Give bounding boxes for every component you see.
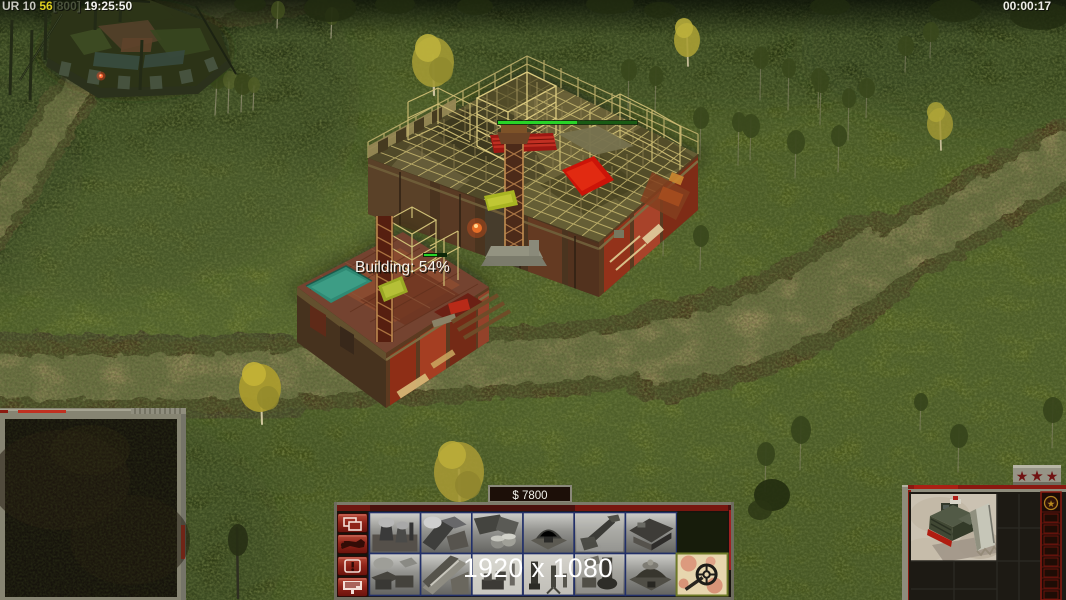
svg-text:00:00:17: 00:00:17	[1003, 0, 1051, 13]
svg-text:★: ★	[1046, 468, 1059, 484]
svg-text:★: ★	[1016, 468, 1029, 484]
svg-text:★: ★	[1047, 499, 1056, 510]
svg-text:★: ★	[1030, 468, 1043, 485]
svg-text:$ 7800: $ 7800	[512, 490, 547, 502]
svg-text:UR 10 56[800] 19:25:50: UR 10 56[800] 19:25:50	[2, 0, 132, 13]
svg-text:Building: 54%: Building: 54%	[355, 259, 450, 276]
svg-text:1920 x 1080: 1920 x 1080	[463, 553, 613, 583]
